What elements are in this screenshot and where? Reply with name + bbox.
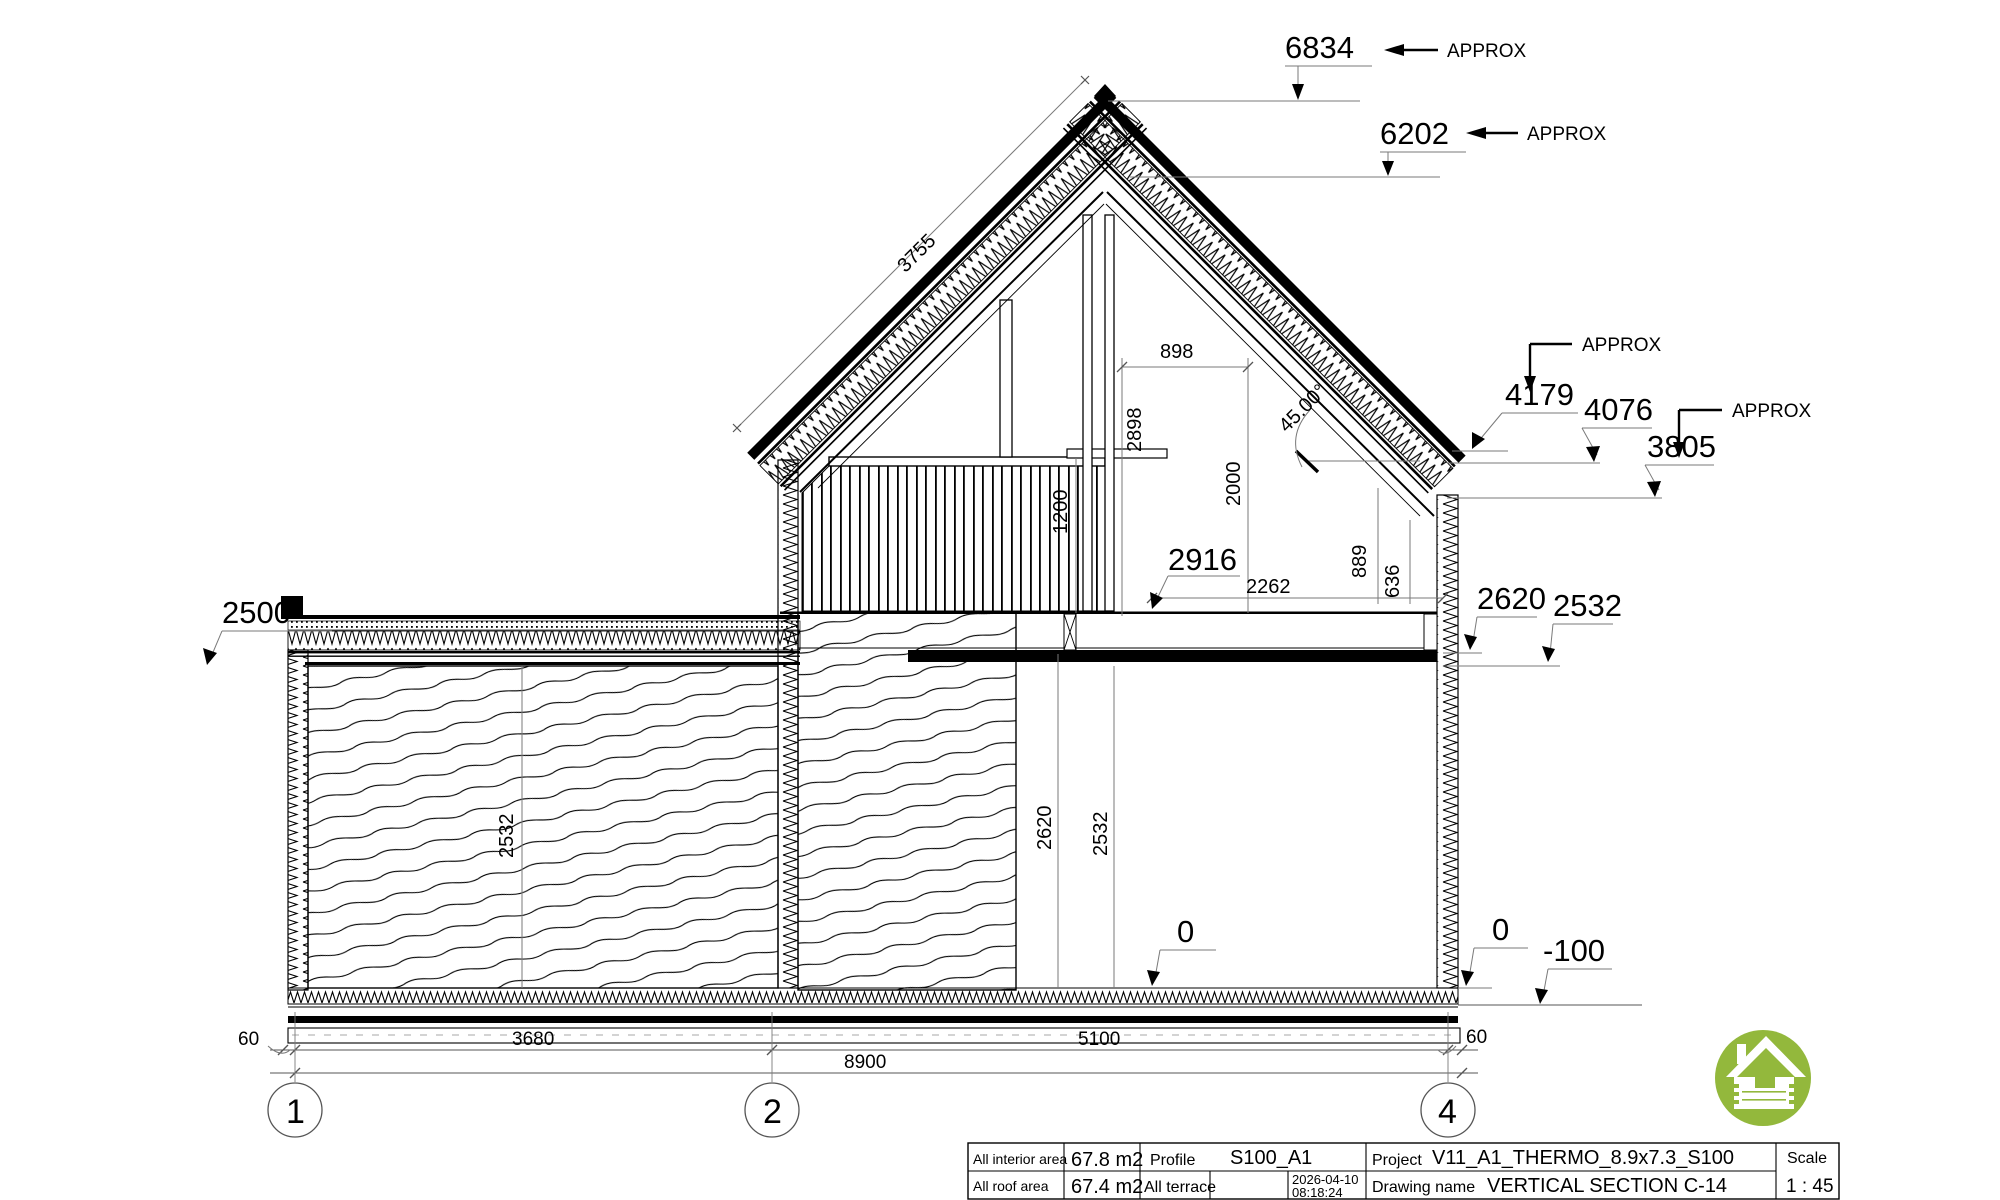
dim-2000: 2000	[1223, 462, 1245, 507]
interior-area-value: 67.8 m2	[1071, 1149, 1143, 1171]
dim-slope: 3755	[733, 76, 1089, 432]
ground-slab	[288, 988, 1642, 1043]
interior-area-label: All interior area	[973, 1151, 1067, 1167]
dim-2898: 2898	[1124, 408, 1146, 453]
level-zero-right: 0	[1458, 912, 1528, 988]
dim-zero-right: 0	[1492, 912, 1509, 947]
dim-4179: 4179	[1505, 377, 1574, 412]
dim-angle: 45.00°	[1275, 380, 1332, 437]
left-room-section-hatch	[308, 666, 778, 988]
dim-2532-room: 2532	[496, 814, 518, 859]
dim-60-left: 60	[238, 1029, 259, 1050]
approx-label-top: APPROX	[1447, 41, 1527, 62]
center-wall	[778, 460, 798, 988]
dim-60-right: 60	[1466, 1027, 1487, 1048]
time-value: 08:18:24	[1292, 1185, 1343, 1200]
dim-2620-right: 2620	[1477, 581, 1546, 616]
roof-area-label: All roof area	[973, 1178, 1049, 1194]
drawing-canvas: 6834 APPROX 6202 APPROX 3755 898	[0, 0, 2000, 1200]
scale-value: 1 : 45	[1786, 1176, 1834, 1197]
approx-label-second: APPROX	[1527, 124, 1607, 145]
dim-minus100: -100	[1543, 933, 1605, 968]
left-arrow-icon	[1466, 127, 1486, 139]
dim-ridge-total: 6834 APPROX	[1108, 30, 1527, 101]
approx-label-3805: APPROX	[1732, 401, 1812, 422]
left-wing-roof	[281, 596, 800, 665]
dim-3805: 3805	[1647, 429, 1716, 464]
dim-4076: 4076	[1584, 392, 1653, 427]
dim-2916: 2916	[1168, 542, 1237, 577]
approx-label-4179: APPROX	[1582, 335, 1662, 356]
vertical-section-drawing: 6834 APPROX 6202 APPROX 3755 898	[0, 0, 2000, 1200]
project-label: Project	[1372, 1152, 1422, 1169]
grid-axis-1: 1	[286, 1093, 305, 1131]
dim-2620-mid: 2620	[1034, 806, 1056, 851]
title-block: All interior area 67.8 m2 Profile S100_A…	[968, 1143, 1839, 1200]
profile-label: Profile	[1150, 1152, 1195, 1169]
level-minus100: -100	[1535, 933, 1612, 1004]
scale-label: Scale	[1787, 1150, 1827, 1167]
dim-1200: 1200	[1050, 490, 1072, 535]
dim-898: 898	[1160, 341, 1193, 363]
dim-2262: 2262	[1246, 576, 1291, 598]
stair-wall-section-hatch	[798, 613, 1016, 990]
dim-889: 889	[1349, 545, 1371, 578]
dim-3680: 3680	[512, 1029, 554, 1050]
dim-8900: 8900	[844, 1052, 886, 1073]
profile-value: S100_A1	[1230, 1147, 1312, 1169]
dim-2500: 2500	[222, 595, 291, 630]
dim-2532-right: 2532	[1553, 588, 1622, 623]
dim-2532-mid: 2532	[1090, 812, 1112, 857]
left-arrow-icon	[1384, 44, 1404, 56]
left-exterior-wall	[288, 650, 308, 990]
handrail	[829, 457, 1105, 466]
floor-support-post	[1064, 614, 1076, 650]
dim-636: 636	[1382, 565, 1404, 598]
dim-6834: 6834	[1285, 30, 1354, 65]
level-zero-left: 0	[1147, 914, 1216, 986]
roof-area-value: 67.4 m2	[1071, 1176, 1143, 1198]
drawing-name-label: Drawing name	[1372, 1179, 1475, 1196]
left-wing	[288, 650, 778, 990]
project-value: V11_A1_THERMO_8.9x7.3_S100	[1432, 1147, 1734, 1169]
dim-zero-left: 0	[1177, 914, 1194, 949]
right-exterior-wall	[1437, 495, 1458, 988]
dim-6202: 6202	[1380, 116, 1449, 151]
drawing-name-value: VERTICAL SECTION C-14	[1487, 1175, 1727, 1197]
dim-2916-leader: 2916	[1150, 542, 1240, 609]
dim-ridge-inner: 6202 APPROX	[1130, 116, 1607, 177]
grid-axis-4: 4	[1438, 1093, 1457, 1131]
terrace-label: All terrace	[1144, 1179, 1216, 1196]
dim-5100: 5100	[1078, 1029, 1120, 1050]
company-logo	[1715, 1030, 1811, 1126]
grid-axis-2: 2	[763, 1093, 782, 1131]
